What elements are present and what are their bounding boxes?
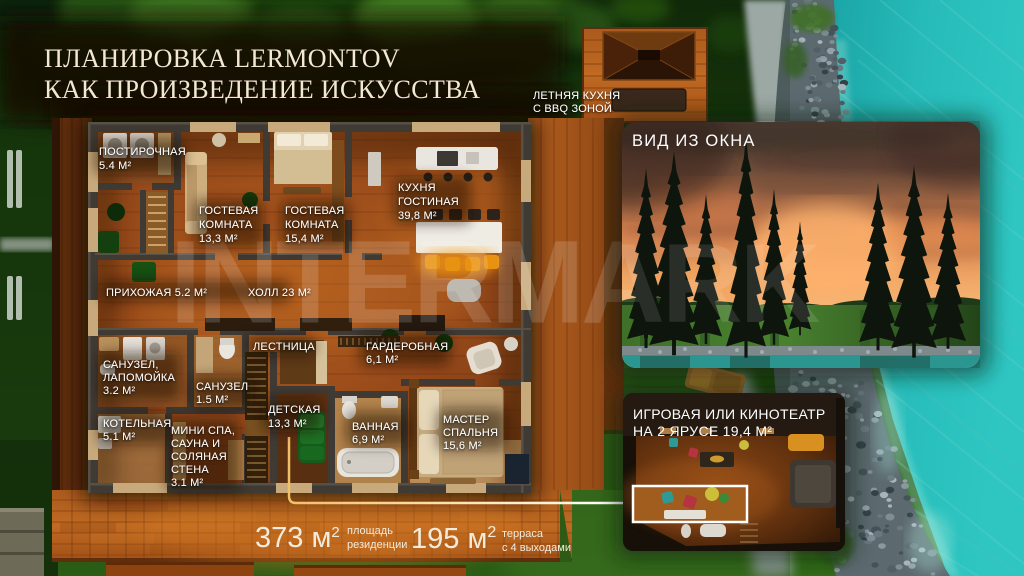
svg-text:13,3 М²: 13,3 М² xyxy=(199,233,238,245)
svg-text:САНУЗЕЛ,: САНУЗЕЛ, xyxy=(103,359,159,371)
svg-text:ПОСТИРОЧНАЯ: ПОСТИРОЧНАЯ xyxy=(99,146,186,158)
svg-text:ЛЕТНЯЯ КУХНЯ: ЛЕТНЯЯ КУХНЯ xyxy=(533,90,620,102)
svg-text:ГОСТЕВАЯ: ГОСТЕВАЯ xyxy=(199,205,258,217)
svg-text:СТЕНА: СТЕНА xyxy=(171,464,209,476)
svg-text:13,3 М²: 13,3 М² xyxy=(268,418,307,430)
svg-text:373 м2: 373 м2 xyxy=(255,522,340,554)
svg-text:ХОЛЛ 23 М²: ХОЛЛ 23 М² xyxy=(248,287,311,299)
svg-text:15,6 М²: 15,6 М² xyxy=(443,440,482,452)
svg-text:15,4 М²: 15,4 М² xyxy=(285,233,324,245)
svg-text:ЛАПОМОЙКА: ЛАПОМОЙКА xyxy=(103,371,176,384)
svg-text:САУНА И: САУНА И xyxy=(171,438,220,450)
svg-text:МИНИ СПА,: МИНИ СПА, xyxy=(171,425,235,437)
svg-text:СОЛЯНАЯ: СОЛЯНАЯ xyxy=(171,451,227,463)
svg-text:ГАРДЕРОБНАЯ: ГАРДЕРОБНАЯ xyxy=(366,341,448,353)
svg-text:ВИД ИЗ ОКНА: ВИД ИЗ ОКНА xyxy=(632,132,756,150)
svg-text:КОМНАТА: КОМНАТА xyxy=(199,219,253,231)
svg-text:ГОСТИНАЯ: ГОСТИНАЯ xyxy=(398,196,459,208)
svg-text:МАСТЕР: МАСТЕР xyxy=(443,414,489,426)
svg-text:ЛЕСТНИЦА: ЛЕСТНИЦА xyxy=(253,341,315,353)
svg-text:резиденции: резиденции xyxy=(347,539,407,551)
svg-text:САНУЗЕЛ: САНУЗЕЛ xyxy=(196,381,248,393)
svg-text:НА 2 ЯРУСЕ 19,4 М²: НА 2 ЯРУСЕ 19,4 М² xyxy=(633,423,772,439)
svg-text:ИГРОВАЯ ИЛИ КИНОТЕАТР: ИГРОВАЯ ИЛИ КИНОТЕАТР xyxy=(633,406,826,422)
svg-text:3.1 М²: 3.1 М² xyxy=(171,477,204,489)
svg-text:ПЛАНИРОВКА LERMONTOV: ПЛАНИРОВКА LERMONTOV xyxy=(44,44,400,73)
svg-text:195 м2: 195 м2 xyxy=(411,523,496,555)
svg-text:терраса: терраса xyxy=(502,528,544,540)
svg-text:КАК ПРОИЗВЕДЕНИЕ ИСКУССТВА: КАК ПРОИЗВЕДЕНИЕ ИСКУССТВА xyxy=(44,75,480,104)
svg-text:КОМНАТА: КОМНАТА xyxy=(285,219,339,231)
svg-text:ВАННАЯ: ВАННАЯ xyxy=(352,421,399,433)
svg-text:площадь: площадь xyxy=(347,525,393,537)
svg-text:1.5 М²: 1.5 М² xyxy=(196,394,229,406)
svg-text:КУХНЯ: КУХНЯ xyxy=(398,182,436,194)
svg-text:ГОСТЕВАЯ: ГОСТЕВАЯ xyxy=(285,205,344,217)
svg-text:6,9 М²: 6,9 М² xyxy=(352,434,385,446)
svg-text:ПРИХОЖАЯ 5.2 М²: ПРИХОЖАЯ 5.2 М² xyxy=(106,287,207,299)
svg-text:39,8 М²: 39,8 М² xyxy=(398,210,437,222)
svg-text:5.4 М²: 5.4 М² xyxy=(99,160,132,172)
svg-text:5.1 М²: 5.1 М² xyxy=(103,431,136,443)
svg-text:3.2 М²: 3.2 М² xyxy=(103,385,136,397)
svg-text:СПАЛЬНЯ: СПАЛЬНЯ xyxy=(443,427,498,439)
svg-text:КОТЕЛЬНАЯ: КОТЕЛЬНАЯ xyxy=(103,418,171,430)
svg-text:6,1 М²: 6,1 М² xyxy=(366,354,399,366)
svg-text:ДЕТСКАЯ: ДЕТСКАЯ xyxy=(268,404,321,416)
svg-text:с 4 выходами: с 4 выходами xyxy=(502,542,571,554)
svg-text:С BBQ ЗОНОЙ: С BBQ ЗОНОЙ xyxy=(533,102,612,115)
